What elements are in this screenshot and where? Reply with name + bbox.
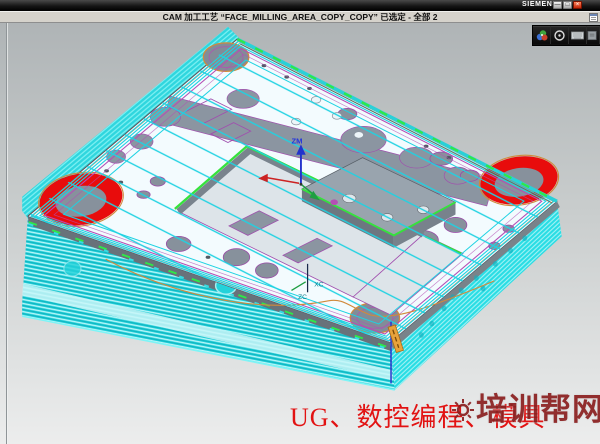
watermark-text: 培训帮网 <box>476 392 600 428</box>
panel-icon[interactable] <box>589 13 598 22</box>
viewport-left-border-highlight <box>7 23 8 444</box>
title-bar: SIEMENS — □ × <box>0 0 600 11</box>
xc-axis-label: XC <box>314 282 323 289</box>
panel-icon[interactable] <box>587 26 600 44</box>
application-window: SIEMENS — □ × CAM 加工工艺 “FACE_MILLING_ARE… <box>0 0 600 444</box>
shaded-display-icon[interactable] <box>533 26 551 44</box>
graphics-viewport[interactable]: ZM XC ZC <box>0 23 600 444</box>
zm-axis-label: ZM <box>291 136 302 145</box>
sun-icon <box>451 398 475 422</box>
restore-button[interactable]: □ <box>563 1 572 9</box>
keyboard-icon[interactable] <box>569 26 587 44</box>
minimize-button[interactable]: — <box>553 1 562 9</box>
watermark: 培训帮网 <box>451 392 600 428</box>
window-buttons: — □ × <box>553 1 582 9</box>
snap-circle-icon[interactable] <box>551 26 569 44</box>
prompt-message: CAM 加工工艺 “FACE_MILLING_AREA_COPY_COPY” 已… <box>0 12 600 22</box>
close-button[interactable]: × <box>573 1 582 9</box>
model-view[interactable]: ZM XC ZC <box>0 23 600 444</box>
zc-axis-label: ZC <box>298 294 307 301</box>
floating-toolbar <box>532 25 600 46</box>
prompt-bar: CAM 加工工艺 “FACE_MILLING_AREA_COPY_COPY” 已… <box>0 11 600 23</box>
